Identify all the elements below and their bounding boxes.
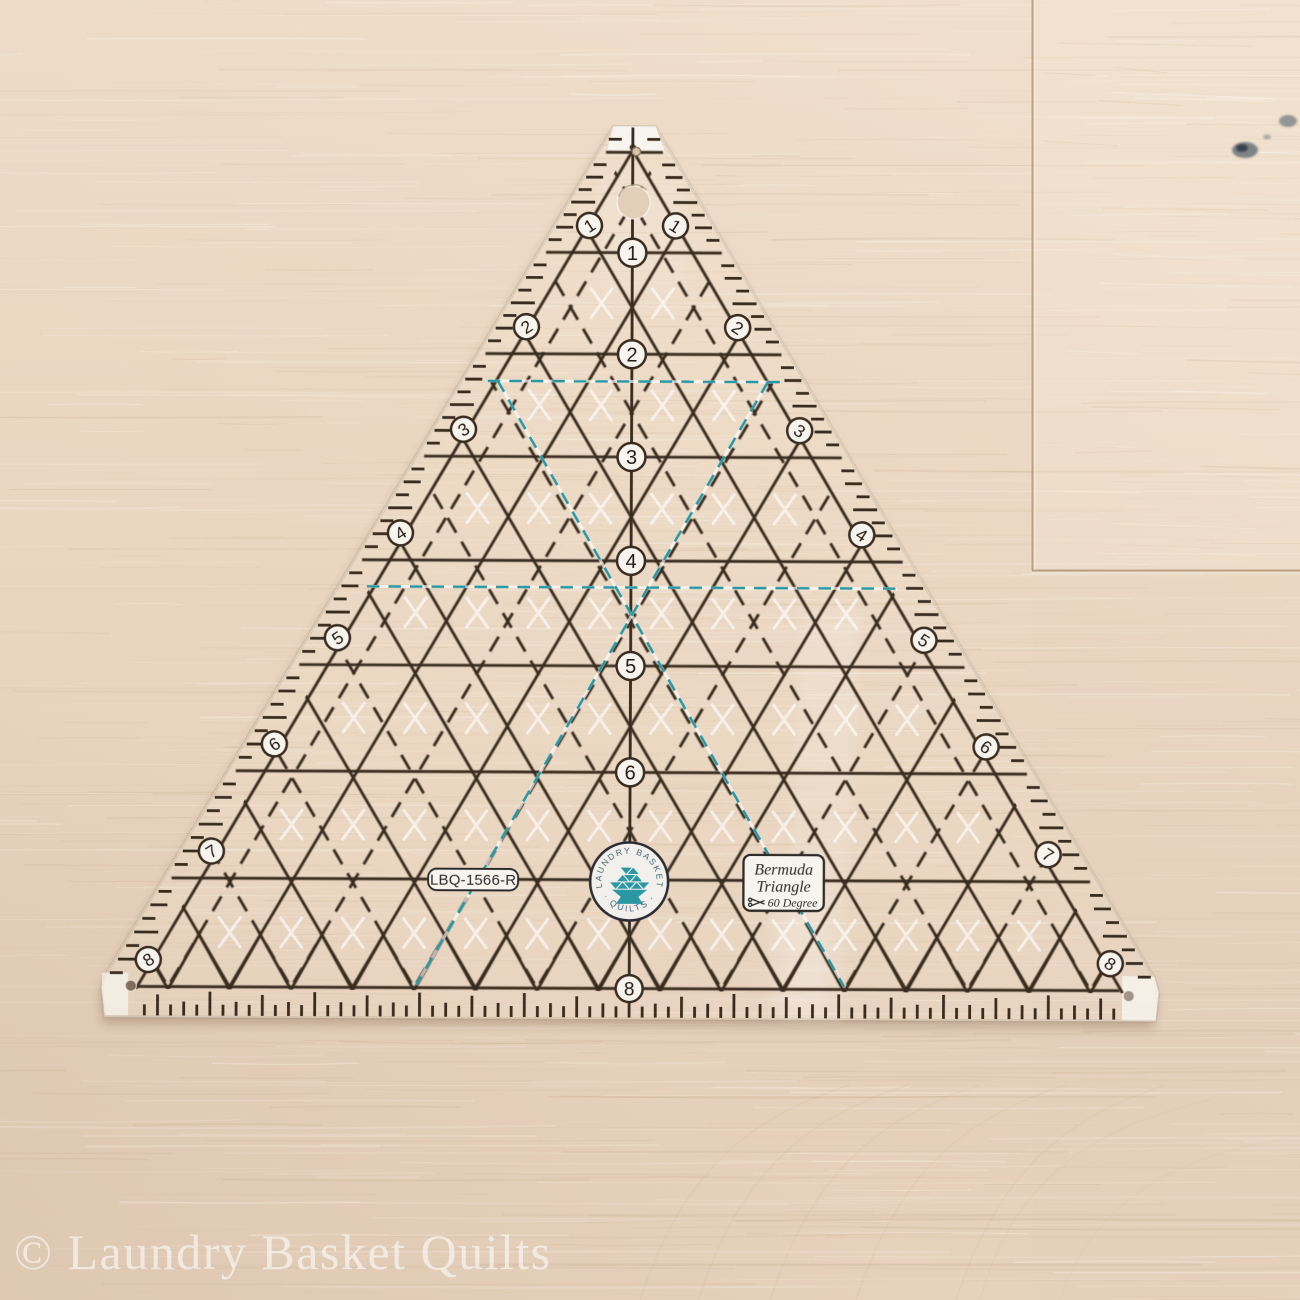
svg-text:Bermuda: Bermuda <box>754 862 813 879</box>
svg-text:60 Degree: 60 Degree <box>768 896 819 910</box>
svg-text:5: 5 <box>625 656 636 678</box>
svg-text:LBQ-1566-R: LBQ-1566-R <box>430 872 516 889</box>
svg-text:Triangle: Triangle <box>756 879 810 896</box>
svg-text:6: 6 <box>625 763 636 785</box>
svg-text:1: 1 <box>627 243 638 265</box>
svg-text:8: 8 <box>624 979 635 1000</box>
svg-text:4: 4 <box>625 551 636 573</box>
svg-text:2: 2 <box>626 344 637 366</box>
svg-text:© Laundry Basket Quilts: © Laundry Basket Quilts <box>14 1224 552 1280</box>
svg-text:3: 3 <box>626 447 637 469</box>
